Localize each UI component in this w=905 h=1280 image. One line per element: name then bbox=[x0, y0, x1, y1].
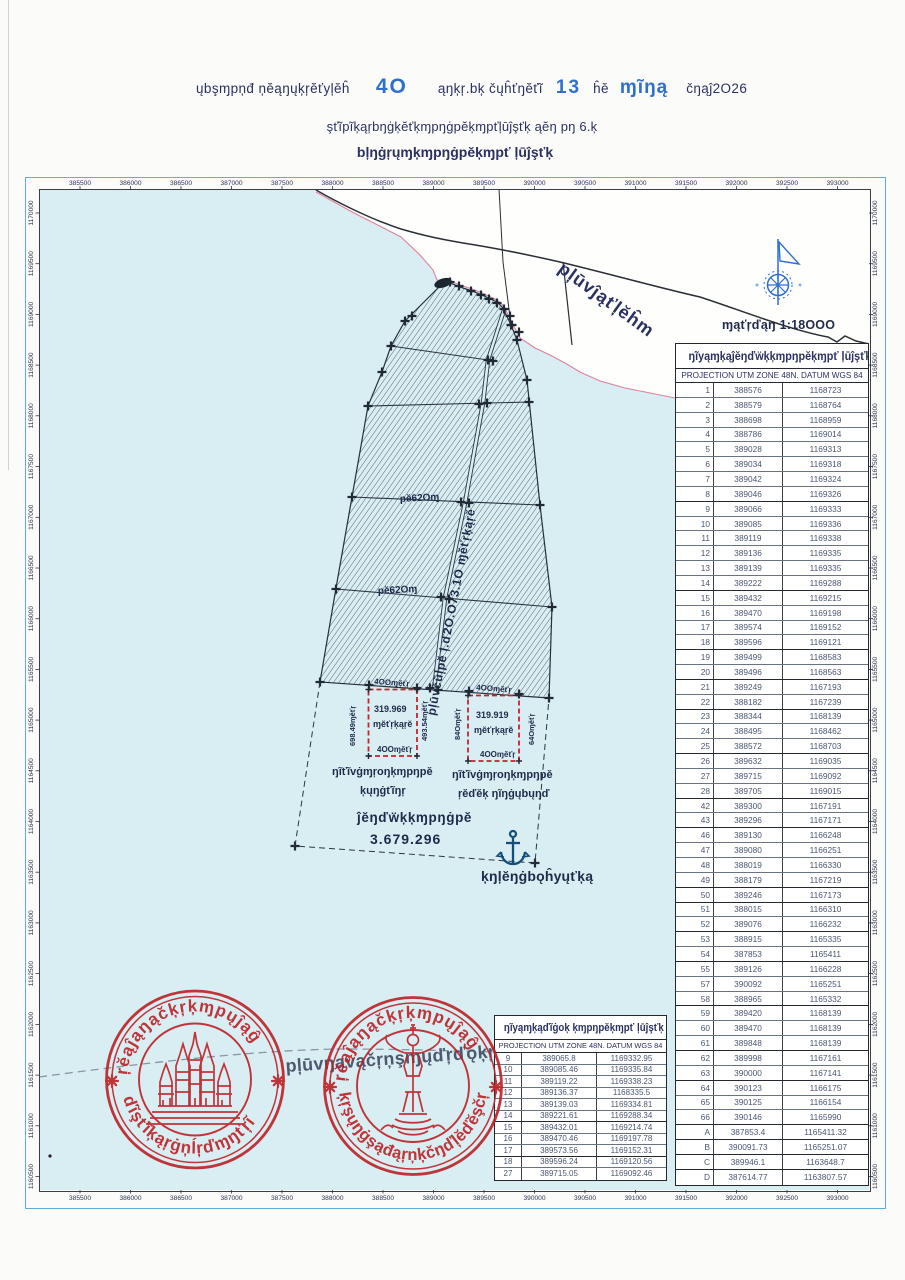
svg-text:ŗĕąĵąŋąčķŗķɱpųĵąĝ: ŗĕąĵąŋąčķŗķɱpųĵąĝ bbox=[330, 1003, 483, 1082]
